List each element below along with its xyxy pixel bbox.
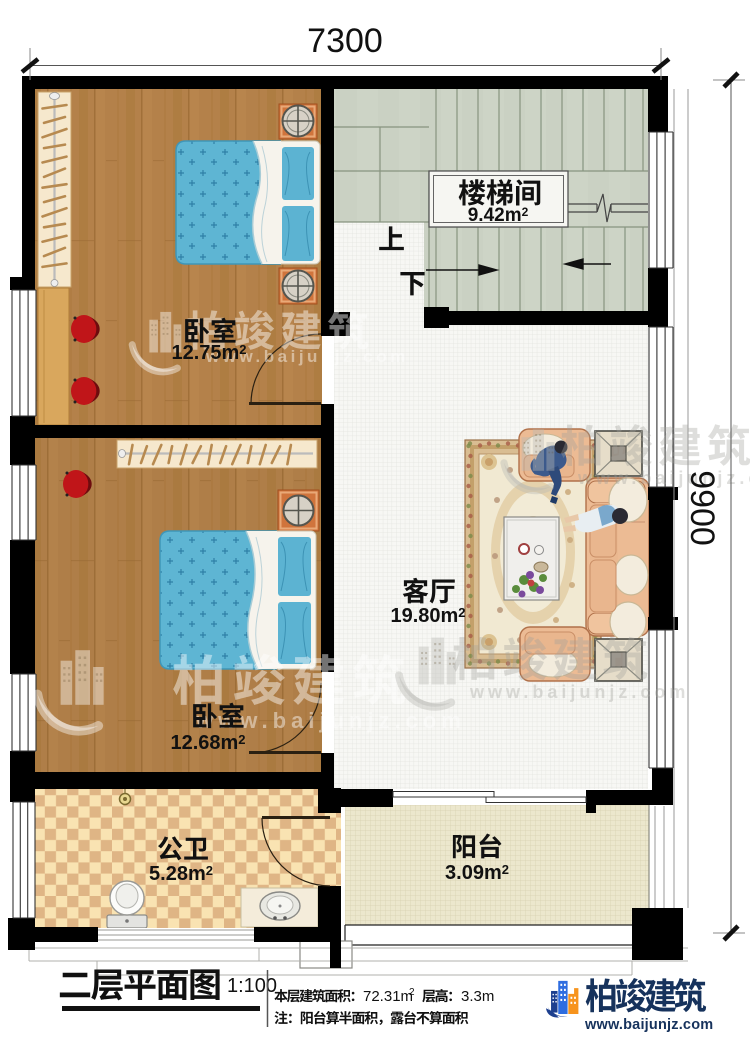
svg-text:9900: 9900 (683, 470, 721, 546)
svg-text:19.80m2: 19.80m2 (390, 605, 465, 627)
svg-text:3.09m2: 3.09m2 (445, 862, 509, 884)
svg-text:5.28m2: 5.28m2 (149, 863, 213, 885)
svg-text:3.3m: 3.3m (461, 988, 494, 1005)
svg-text:7300: 7300 (307, 22, 383, 60)
svg-text:www.baijunjz.com: www.baijunjz.com (584, 1017, 713, 1033)
svg-text:12.75m2: 12.75m2 (171, 342, 246, 364)
svg-text:72.31m: 72.31m (363, 988, 413, 1005)
svg-text:12.68m2: 12.68m2 (170, 732, 245, 754)
svg-text:www.baijunjz.com: www.baijunjz.com (577, 468, 750, 488)
svg-text:1:100: 1:100 (227, 975, 277, 997)
svg-text:9.42m2: 9.42m2 (468, 205, 529, 226)
svg-text:2: 2 (409, 987, 415, 998)
svg-text:www.baijunjz.com: www.baijunjz.com (469, 682, 689, 702)
